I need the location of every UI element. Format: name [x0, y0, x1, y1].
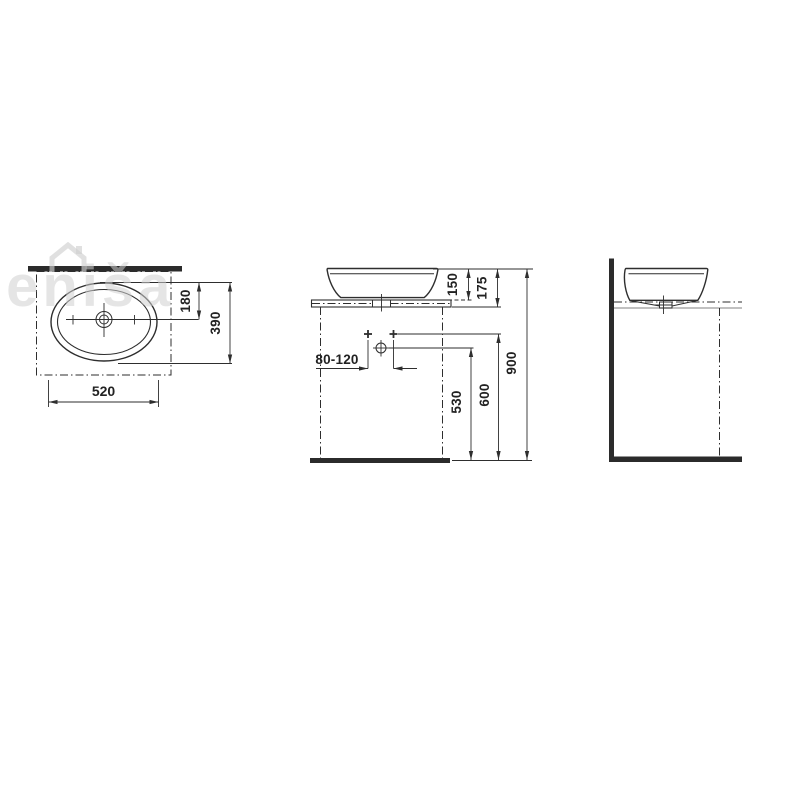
dim-label-180: 180 [178, 289, 193, 312]
floor-line-side [609, 457, 742, 463]
dim-label-175: 175 [475, 276, 490, 299]
wall-line [28, 266, 182, 272]
front-view: 150 175 900 530 600 80-120 [310, 269, 533, 464]
washbasin-dimension-drawing: 180 390 520 [0, 0, 800, 800]
dim-label-520: 520 [92, 383, 116, 399]
dim-label-530: 530 [449, 390, 464, 413]
floor-line [310, 458, 450, 463]
wall-line-side [609, 259, 614, 459]
dim-label-900: 900 [504, 351, 519, 374]
dim-label-390: 390 [208, 311, 223, 334]
dim-label-150: 150 [445, 273, 460, 296]
side-view [609, 259, 742, 463]
fixing-cross-right [390, 330, 398, 338]
technical-drawing-page: 180 390 520 [0, 0, 800, 800]
dim-label-600: 600 [477, 383, 492, 406]
basin-profile-side [624, 269, 707, 301]
dim-label-80-120: 80-120 [315, 352, 358, 367]
fixing-cross-left [364, 330, 372, 338]
outlet-symbol [373, 340, 389, 357]
drain-detail-side [631, 296, 697, 315]
top-view: 180 390 520 [28, 266, 232, 407]
basin-profile [327, 269, 438, 298]
